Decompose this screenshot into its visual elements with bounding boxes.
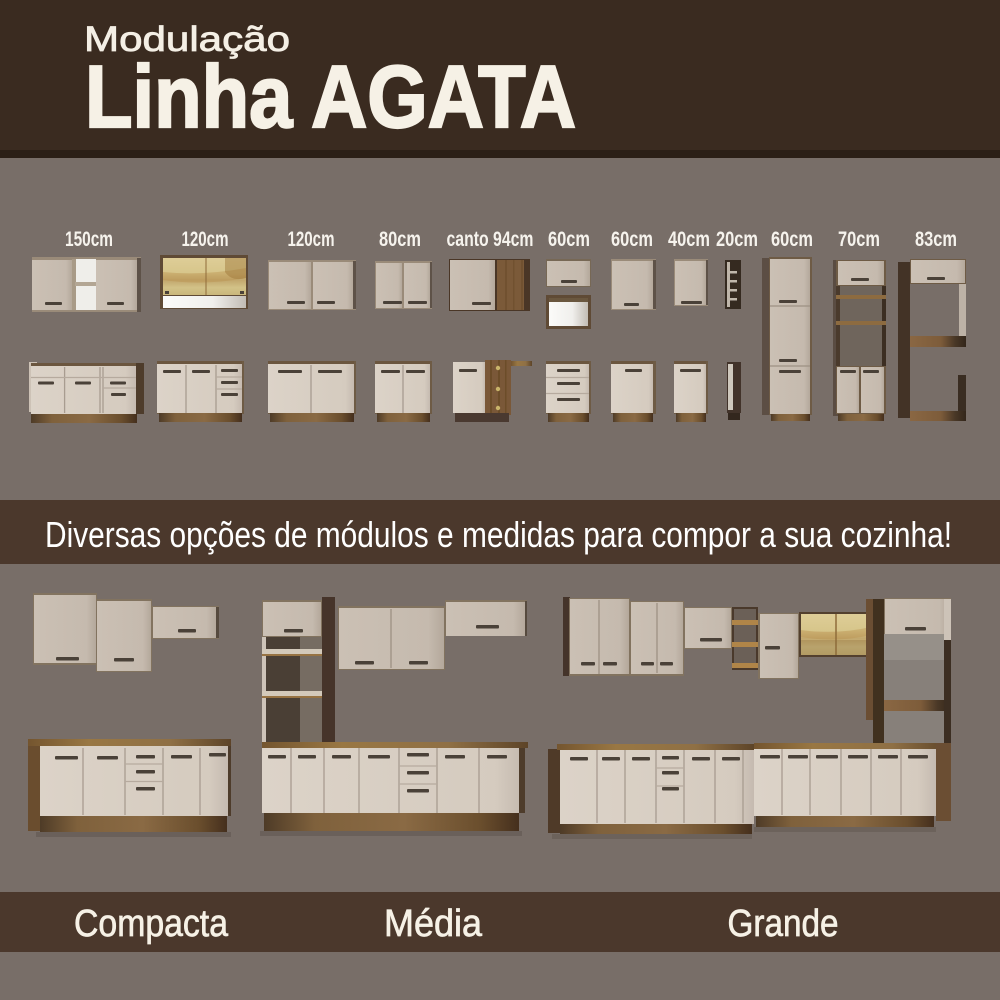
svg-text:80cm: 80cm [379,227,421,251]
svg-text:150cm: 150cm [65,227,113,251]
svg-text:120cm: 120cm [182,227,229,251]
svg-text:Grande: Grande [728,903,839,945]
svg-text:canto 94cm: canto 94cm [447,227,534,251]
svg-text:60cm: 60cm [611,227,653,251]
svg-text:Média: Média [384,903,483,945]
svg-text:40cm: 40cm [668,227,710,251]
svg-text:Linha AGATA: Linha AGATA [85,47,576,146]
svg-text:Compacta: Compacta [74,903,229,945]
svg-text:60cm: 60cm [771,227,813,251]
svg-text:120cm: 120cm [288,227,335,251]
svg-text:20cm: 20cm [716,227,758,251]
svg-text:Diversas opções de módulos e m: Diversas opções de módulos e medidas par… [45,514,952,555]
svg-text:70cm: 70cm [838,227,880,251]
svg-text:60cm: 60cm [548,227,590,251]
svg-text:83cm: 83cm [915,227,957,251]
